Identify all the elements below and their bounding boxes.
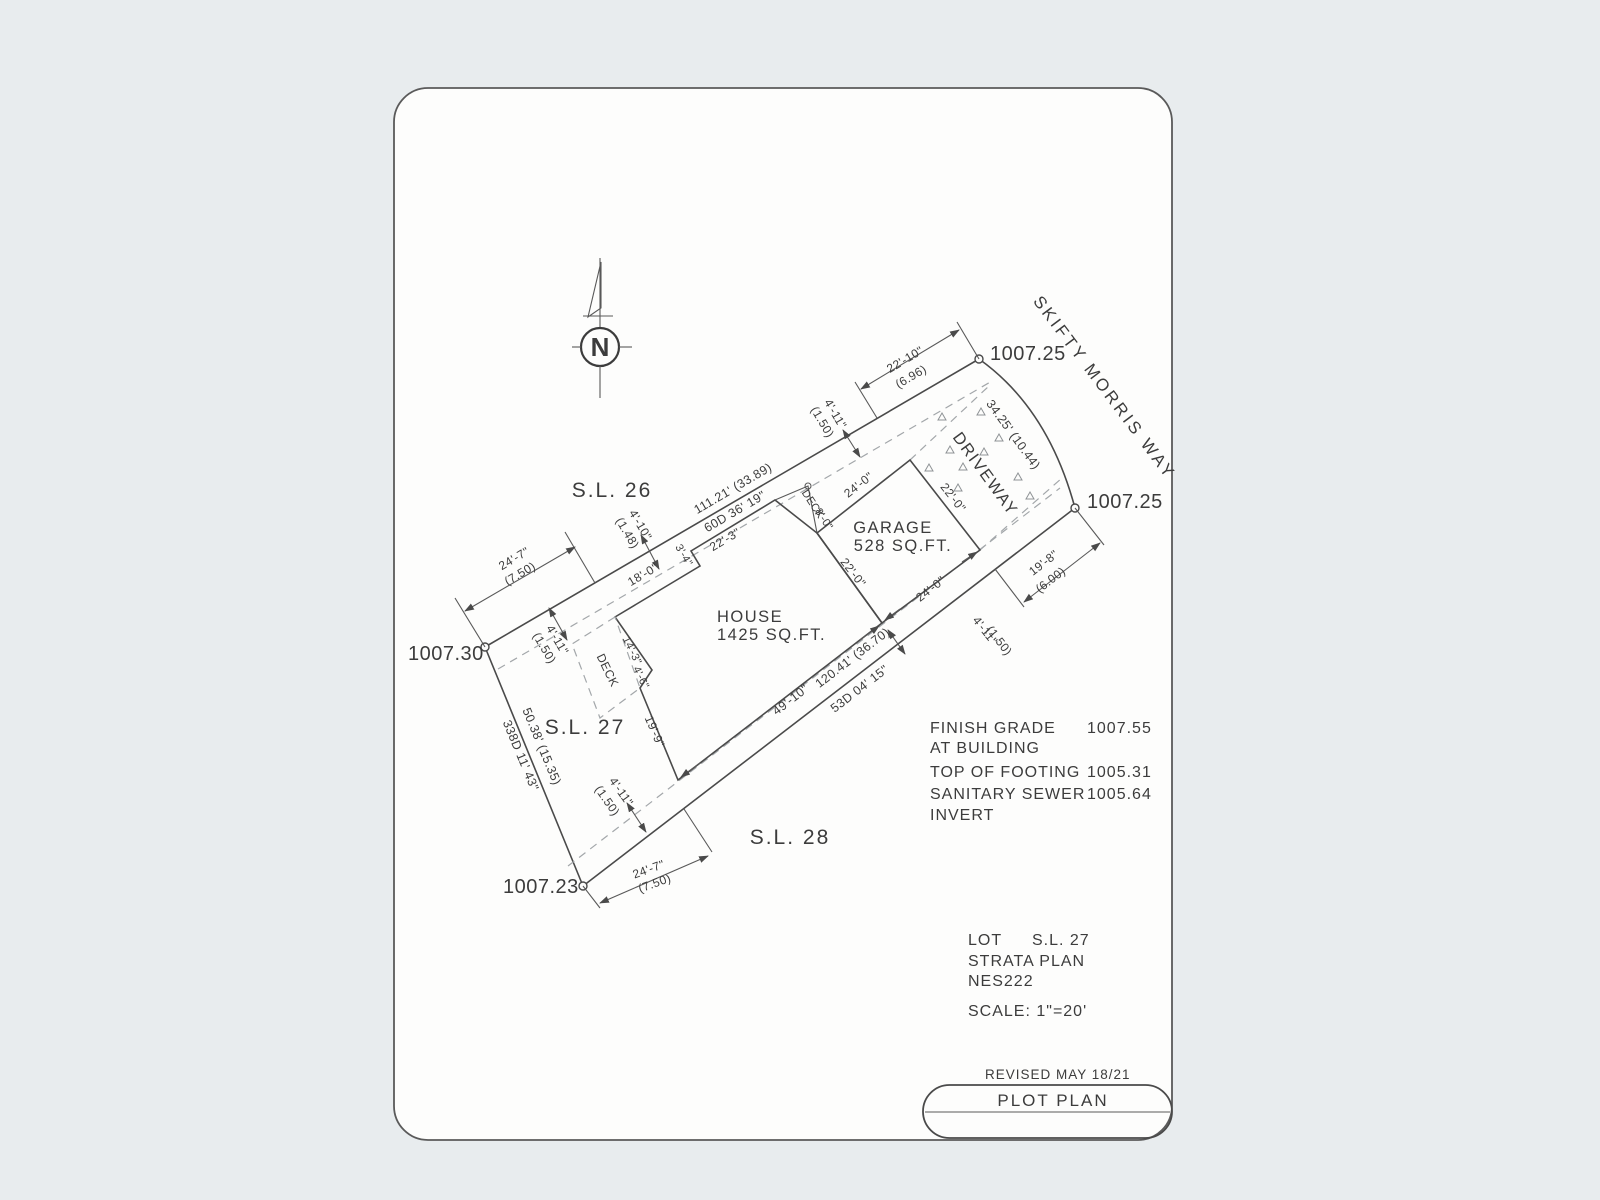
lot-label-sl26: S.L. 26	[572, 479, 653, 502]
footing-label: TOP OF FOOTING	[930, 764, 1080, 781]
scale-label: SCALE: 1"=20'	[968, 1003, 1087, 1020]
north-label: N	[591, 332, 610, 362]
lot-label: LOT	[968, 932, 1002, 949]
lot-label-sl28: S.L. 28	[750, 826, 831, 849]
finish-grade-value: 1007.55	[1087, 720, 1152, 737]
strata-plan-label: STRATA PLAN	[968, 953, 1085, 970]
house-area: 1425 SQ.FT.	[717, 626, 826, 644]
finish-grade-label-1: FINISH GRADE	[930, 720, 1056, 737]
lot-value: S.L. 27	[1032, 932, 1090, 949]
lot-label-sl27: S.L. 27	[545, 716, 626, 739]
plot-plan-drawing: N	[0, 0, 1600, 1200]
strata-plan-number: NES222	[968, 973, 1034, 990]
garage-label: GARAGE	[853, 519, 933, 537]
footing-value: 1005.31	[1087, 764, 1152, 781]
elevation-left: 1007.30	[408, 643, 484, 665]
sheet-title: PLOT PLAN	[997, 1091, 1108, 1110]
elevation-top: 1007.25	[990, 343, 1066, 365]
finish-grade-label-2: AT BUILDING	[930, 740, 1040, 757]
revised-date: REVISED MAY 18/21	[985, 1067, 1131, 1082]
sewer-label-2: INVERT	[930, 807, 994, 824]
scanned-plot-plan-page: N	[0, 0, 1600, 1200]
elevation-bottom: 1007.23	[503, 876, 579, 898]
sewer-label-1: SANITARY SEWER	[930, 786, 1085, 803]
elevation-right: 1007.25	[1087, 491, 1163, 513]
house-label: HOUSE	[717, 608, 783, 626]
garage-area: 528 SQ.FT.	[854, 537, 952, 555]
sewer-value: 1005.64	[1087, 786, 1152, 803]
